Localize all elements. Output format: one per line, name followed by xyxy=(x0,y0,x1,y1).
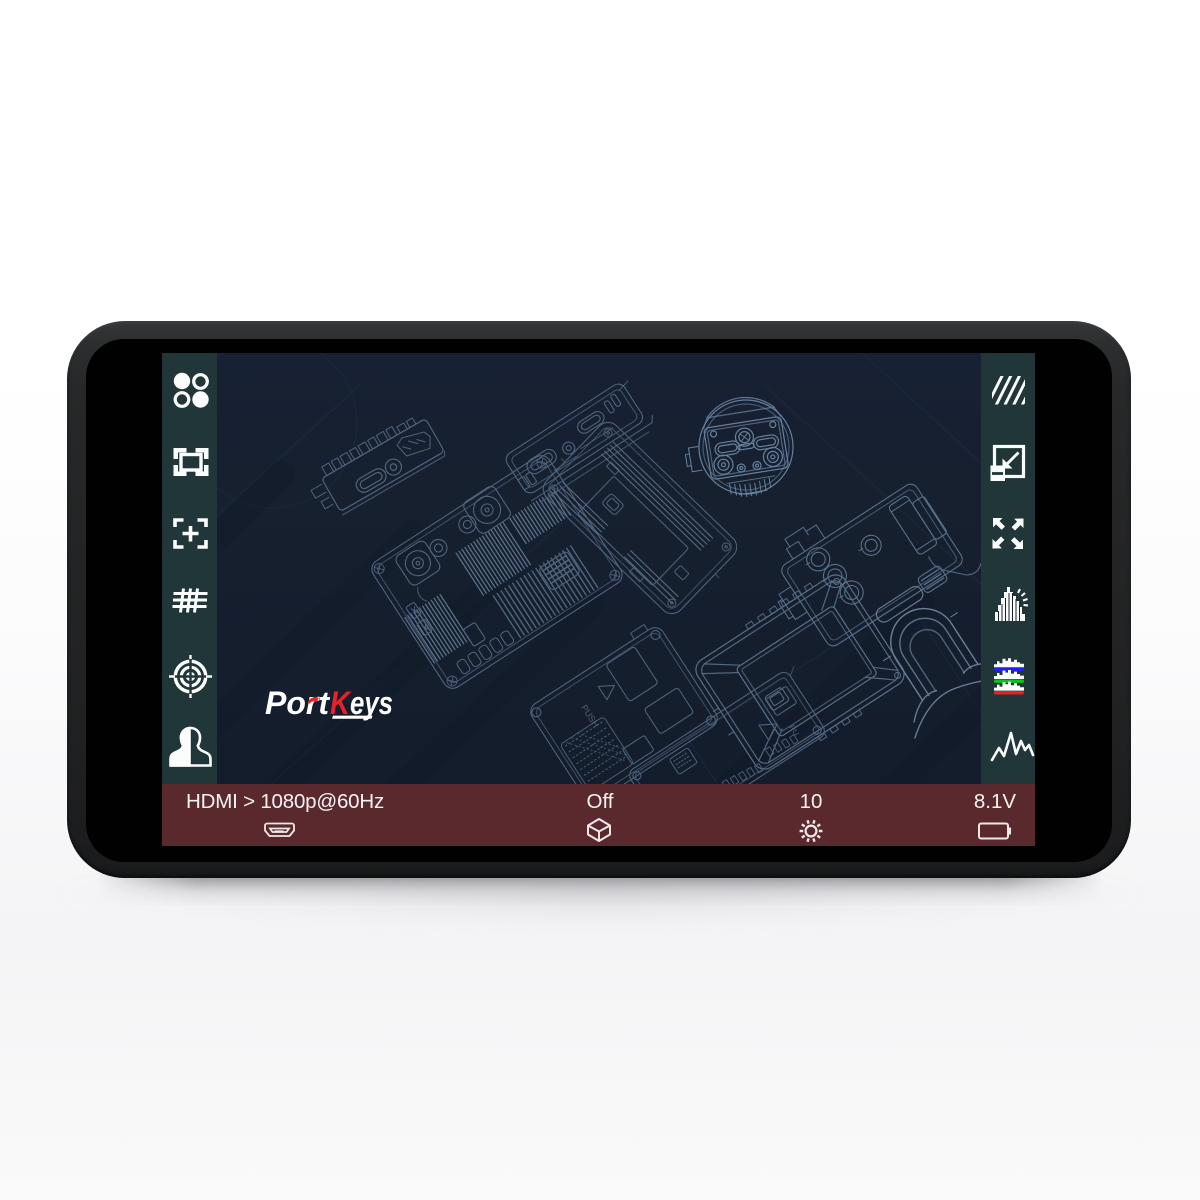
svg-text:Port: Port xyxy=(265,685,330,721)
svg-text:eys: eys xyxy=(350,685,393,721)
